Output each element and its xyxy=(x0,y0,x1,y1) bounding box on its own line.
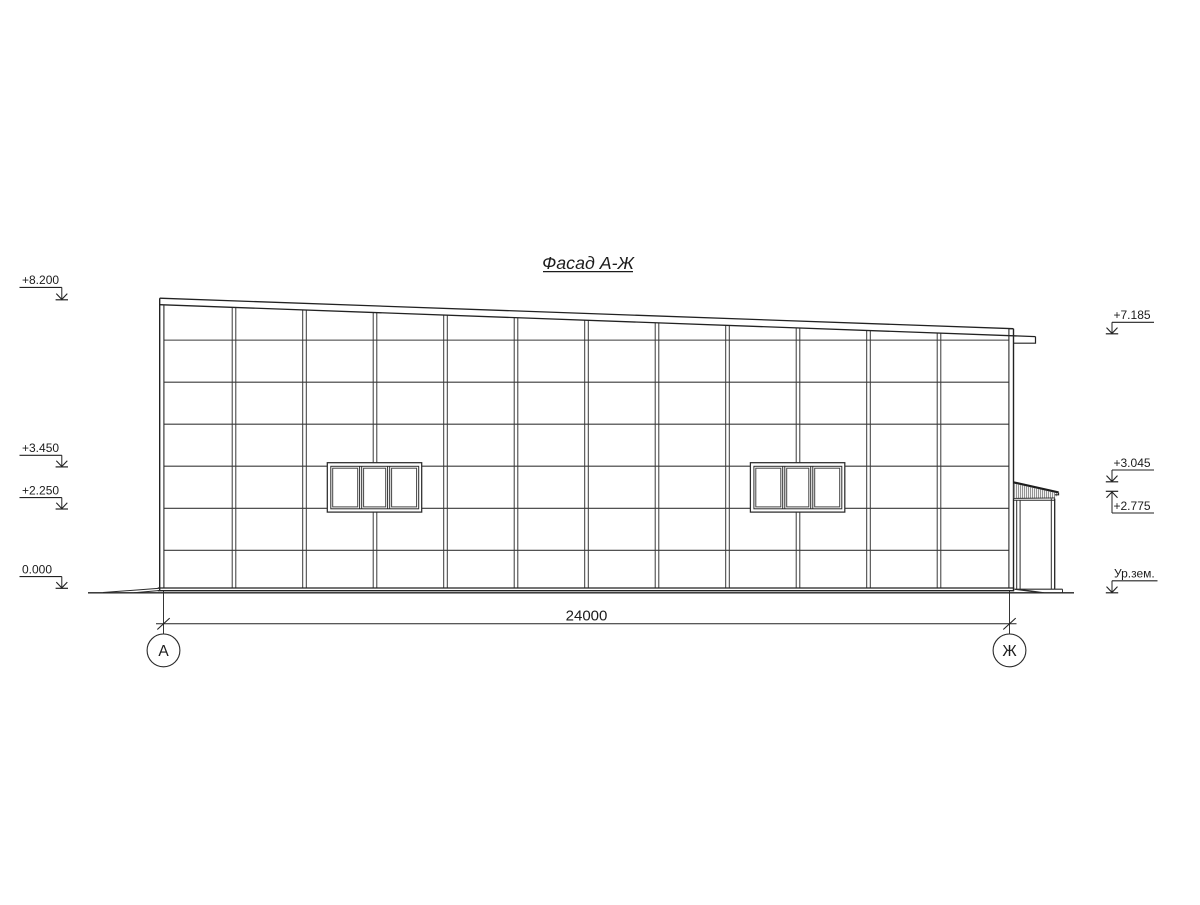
svg-text:Ж: Ж xyxy=(1002,643,1017,660)
svg-text:+3.450: +3.450 xyxy=(22,441,59,455)
svg-text:+3.045: +3.045 xyxy=(1114,456,1151,470)
svg-text:Фасад А-Ж: Фасад А-Ж xyxy=(542,253,635,273)
svg-text:А: А xyxy=(158,643,169,660)
svg-text:+2.775: +2.775 xyxy=(1114,499,1151,513)
svg-text:Ур.зем.: Ур.зем. xyxy=(1114,567,1155,581)
svg-text:24000: 24000 xyxy=(566,608,608,625)
svg-text:+8.200: +8.200 xyxy=(22,273,59,287)
svg-text:+7.185: +7.185 xyxy=(1114,308,1151,322)
svg-text:+2.250: +2.250 xyxy=(22,483,59,497)
svg-text:0.000: 0.000 xyxy=(22,562,52,576)
